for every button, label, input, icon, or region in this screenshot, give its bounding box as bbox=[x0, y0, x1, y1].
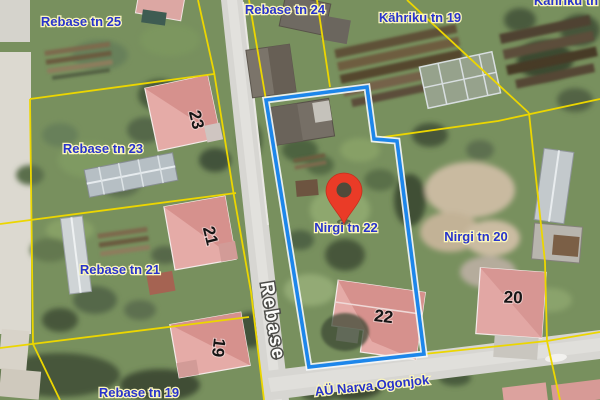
label-rebase-21: Rebase tn 21 bbox=[80, 262, 160, 277]
number-22: 22 bbox=[373, 306, 394, 327]
label-rebase-25: Rebase tn 25 bbox=[41, 14, 121, 29]
satellite-map[interactable]: Rebase tn 25 Rebase tn 24 Kähriku tn 19 … bbox=[0, 0, 600, 400]
pin-hole bbox=[337, 183, 352, 198]
label-nirgi-20: Nirgi tn 20 bbox=[444, 229, 508, 244]
number-19: 19 bbox=[208, 337, 229, 358]
tree-shadow bbox=[321, 313, 369, 351]
label-kahriku-19: Kähriku tn 19 bbox=[379, 10, 461, 25]
label-rebase-23: Rebase tn 23 bbox=[63, 141, 143, 156]
label-rebase-19: Rebase tn 19 bbox=[99, 385, 179, 400]
label-rebase-24: Rebase tn 24 bbox=[245, 2, 326, 17]
number-20: 20 bbox=[503, 288, 523, 308]
map-viewport[interactable]: Rebase tn 25 Rebase tn 24 Kähriku tn 19 … bbox=[0, 0, 600, 400]
label-partial-top-right: Kähriku tn bbox=[534, 0, 598, 8]
